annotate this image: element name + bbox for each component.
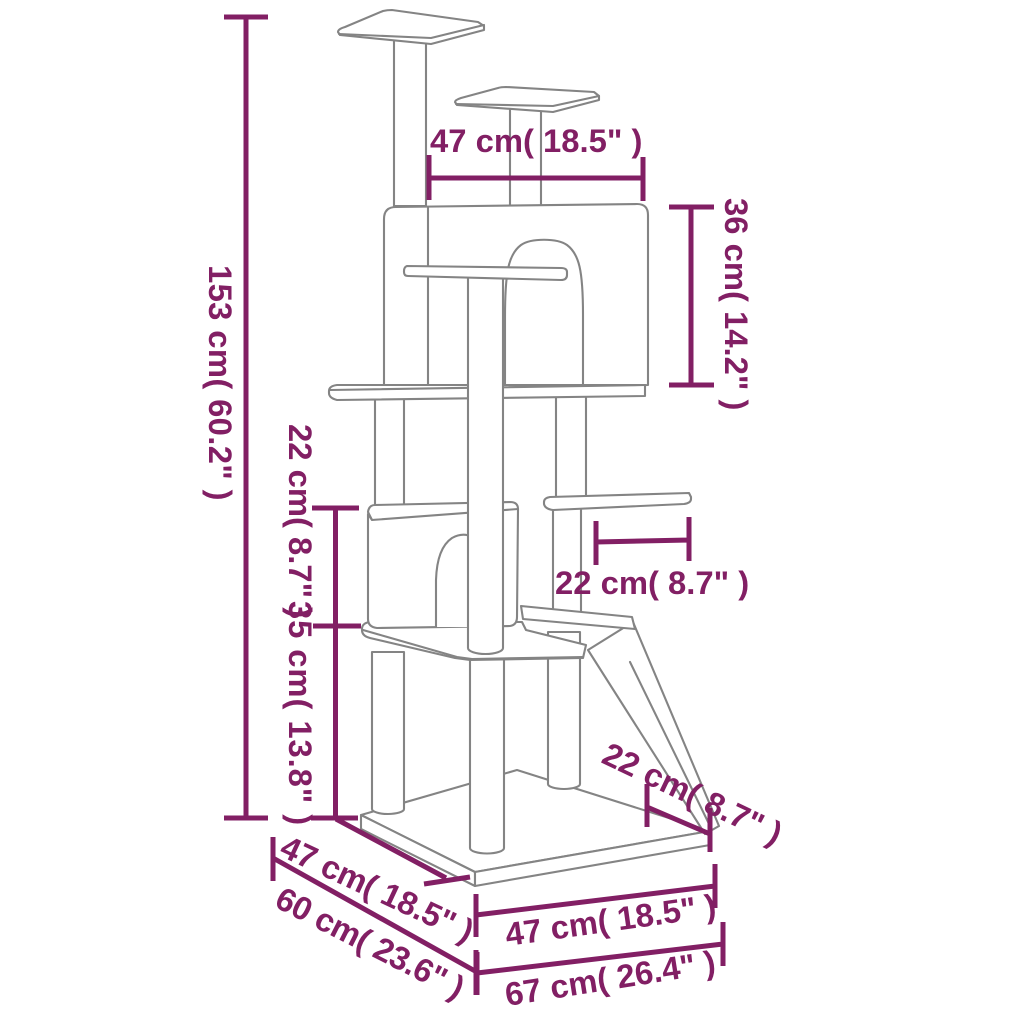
svg-text:36 cm( 14.2" ): 36 cm( 14.2" )	[718, 198, 755, 410]
svg-text:22 cm( 8.7" ): 22 cm( 8.7" )	[555, 564, 749, 601]
svg-text:47 cm( 18.5" ): 47 cm( 18.5" )	[430, 122, 642, 159]
svg-text:153 cm( 60.2" ): 153 cm( 60.2" )	[202, 265, 239, 501]
svg-text:22 cm( 8.7" ): 22 cm( 8.7" )	[282, 424, 319, 618]
svg-text:35 cm( 13.8" ): 35 cm( 13.8" )	[282, 601, 319, 826]
